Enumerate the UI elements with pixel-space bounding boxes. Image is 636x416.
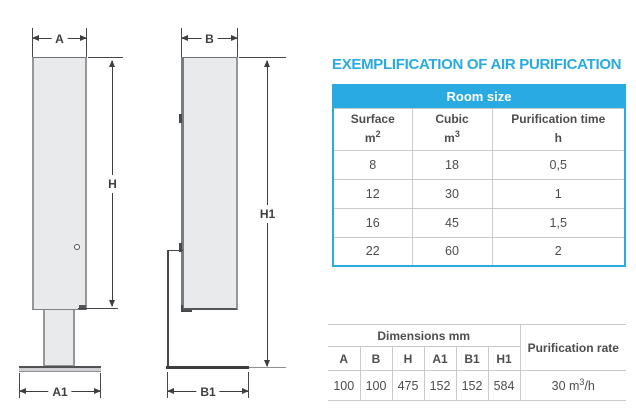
- table-cell: 60: [412, 237, 492, 266]
- arrowhead-right-icon: [80, 35, 87, 41]
- extension-line: [249, 367, 286, 368]
- stand-bracket-step: [167, 250, 183, 251]
- mount-clip-top: [179, 114, 182, 123]
- arrowhead-up-icon: [264, 60, 270, 67]
- arrowhead-right-icon: [231, 35, 238, 41]
- column-header-h: H: [392, 347, 424, 371]
- column-header-purification-time: Purification time h: [492, 108, 625, 150]
- table-cell: 2: [492, 237, 625, 266]
- front-view-body: [32, 57, 87, 310]
- dimension-a: A: [32, 33, 87, 44]
- room-size-header: Room size: [333, 85, 625, 108]
- stand-bracket-upright: [167, 250, 169, 367]
- page-title: EXEMPLIFICATION OF AIR PURIFICATION: [332, 56, 632, 73]
- dim-label-b: B: [201, 33, 218, 45]
- extension-line: [239, 57, 286, 58]
- table-cell: 0,5: [492, 150, 625, 179]
- front-view-pedestal: [43, 310, 75, 367]
- extension-line: [78, 308, 118, 309]
- side-view-foot: [181, 305, 192, 312]
- table-row: 100 100 475 152 152 584 30 m3/h: [328, 371, 626, 401]
- dimensions-table: Dimensions mm Purification rate A B H A1…: [328, 324, 626, 401]
- dim-label-b1: B1: [196, 386, 219, 398]
- column-header-a1: A1: [424, 347, 456, 371]
- table-cell: 12: [333, 179, 412, 208]
- table-cell: 584: [488, 371, 520, 401]
- dim-label-a: A: [51, 33, 68, 45]
- arrowhead-up-icon: [109, 60, 115, 67]
- table-cell: 30: [412, 179, 492, 208]
- column-header-b1: B1: [456, 347, 488, 371]
- column-header-h1: H1: [488, 347, 520, 371]
- arrowhead-right-icon: [94, 388, 101, 394]
- arrowhead-left-icon: [19, 388, 26, 394]
- table-cell: 45: [412, 208, 492, 237]
- arrowhead-down-icon: [109, 300, 115, 307]
- dimension-diagram: A H A1 B: [0, 0, 322, 416]
- arrowhead-right-icon: [242, 388, 249, 394]
- arrowhead-left-icon: [181, 35, 188, 41]
- table-cell: 100: [360, 371, 392, 401]
- power-button-dot: [74, 244, 80, 250]
- dimension-a1: A1: [19, 386, 101, 397]
- dimension-h1: H1: [261, 60, 274, 367]
- arrowhead-down-icon: [264, 360, 270, 367]
- table-row: 16 45 1,5: [333, 208, 625, 237]
- arrowhead-left-icon: [167, 388, 174, 394]
- table-cell: 100: [328, 371, 360, 401]
- table-cell: 22: [333, 237, 412, 266]
- table-cell: 1: [492, 179, 625, 208]
- front-view-base-plate: [19, 366, 101, 372]
- extension-line: [88, 57, 123, 58]
- column-header-cubic: Cubic m3: [412, 108, 492, 150]
- table-cell: 152: [424, 371, 456, 401]
- room-size-table: Room size Surface m2 Cubic m3 Purificati…: [332, 84, 626, 267]
- dimensions-header: Dimensions mm: [328, 325, 520, 347]
- table-cell: 8: [333, 150, 412, 179]
- dimension-b1: B1: [167, 386, 249, 397]
- table-cell: 1,5: [492, 208, 625, 237]
- table-cell: 16: [333, 208, 412, 237]
- dimension-b: B: [181, 33, 238, 44]
- dimension-h: H: [106, 60, 119, 307]
- side-view-base-plate: [166, 366, 249, 369]
- table-row: 8 18 0,5: [333, 150, 625, 179]
- purification-rate-header: Purification rate: [520, 325, 626, 371]
- column-header-a: A: [328, 347, 360, 371]
- table-cell: 475: [392, 371, 424, 401]
- table-row: 22 60 2: [333, 237, 625, 266]
- dim-label-h1: H1: [259, 205, 276, 223]
- table-cell: 18: [412, 150, 492, 179]
- arrowhead-left-icon: [32, 35, 39, 41]
- column-header-b: B: [360, 347, 392, 371]
- dim-label-h: H: [107, 175, 118, 193]
- purification-rate-value: 30 m3/h: [520, 371, 626, 401]
- table-cell: 152: [456, 371, 488, 401]
- dim-label-a1: A1: [48, 386, 71, 398]
- side-view-body: [181, 57, 238, 310]
- column-header-surface: Surface m2: [333, 108, 412, 150]
- table-row: 12 30 1: [333, 179, 625, 208]
- datasheet-page: A H A1 B: [0, 0, 636, 416]
